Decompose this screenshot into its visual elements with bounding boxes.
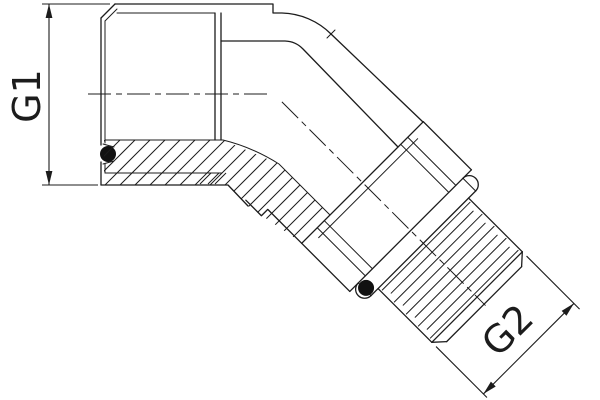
port-chamfer-outer bbox=[101, 4, 115, 18]
g2-extension-line-lower bbox=[436, 347, 487, 398]
elbow-fitting-drawing: G1 bbox=[0, 0, 600, 400]
port-end-walls bbox=[215, 13, 221, 140]
g1-label: G1 bbox=[5, 69, 49, 123]
hatch-lines bbox=[0, 130, 415, 250]
g1-arrow-up bbox=[46, 4, 53, 18]
o-ring-upper bbox=[100, 146, 116, 162]
port-bottom-edge bbox=[101, 185, 248, 206]
port-chamfer-inner bbox=[105, 9, 117, 21]
port-top-and-elbow-outer bbox=[115, 4, 423, 122]
g2-label: G2 bbox=[473, 296, 542, 365]
technical-drawing-page: G1 bbox=[0, 0, 600, 400]
g1-arrow-down bbox=[46, 171, 53, 185]
section-hatching bbox=[0, 130, 415, 250]
g2-extension-line-upper bbox=[527, 256, 580, 309]
diagonal-stem-assembly: G2 bbox=[215, 41, 595, 400]
